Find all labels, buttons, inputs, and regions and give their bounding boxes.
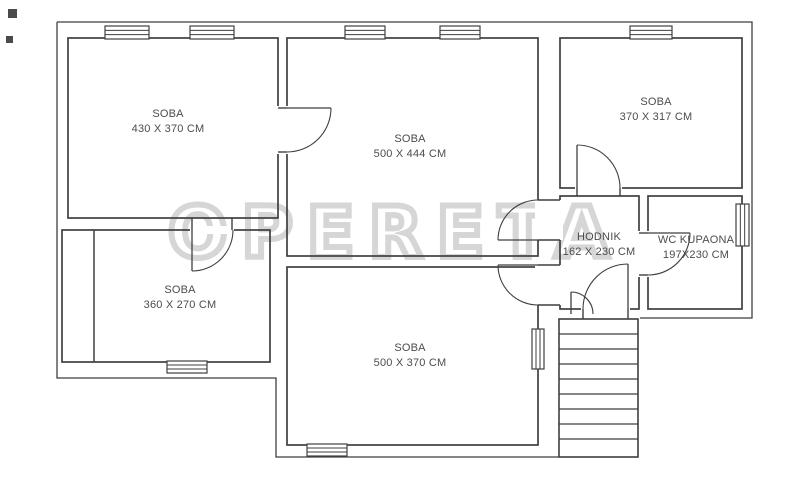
room-name: SOBA <box>620 95 693 110</box>
room-label-2: SOBA500 X 444 CM <box>374 132 447 162</box>
room-label-4: SOBA360 X 270 CM <box>144 283 217 313</box>
room-name: SOBA <box>374 132 447 147</box>
room-dimensions: 430 X 370 CM <box>132 122 205 137</box>
room-name: SOBA <box>132 107 205 122</box>
room-label-3: SOBA370 X 317 CM <box>620 95 693 125</box>
room-label-1: SOBA430 X 370 CM <box>132 107 205 137</box>
room-label-7: WC KUPAONA197X230 CM <box>658 233 734 263</box>
room-name: SOBA <box>144 283 217 298</box>
room-labels-layer: SOBA430 X 370 CMSOBA500 X 444 CMSOBA370 … <box>0 0 807 490</box>
room-dimensions: 500 X 444 CM <box>374 147 447 162</box>
floorplan-canvas: OPERETA SOBA430 X 370 CMSOBA500 X 444 CM… <box>0 0 807 490</box>
room-dimensions: 162 X 230 CM <box>563 245 636 260</box>
room-dimensions: 197X230 CM <box>658 248 734 263</box>
room-dimensions: 500 X 370 CM <box>374 356 447 371</box>
room-name: WC KUPAONA <box>658 233 734 248</box>
room-label-5: SOBA500 X 370 CM <box>374 341 447 371</box>
room-label-6: HODNIK162 X 230 CM <box>563 230 636 260</box>
room-name: SOBA <box>374 341 447 356</box>
room-dimensions: 370 X 317 CM <box>620 110 693 125</box>
room-dimensions: 360 X 270 CM <box>144 298 217 313</box>
room-name: HODNIK <box>563 230 636 245</box>
